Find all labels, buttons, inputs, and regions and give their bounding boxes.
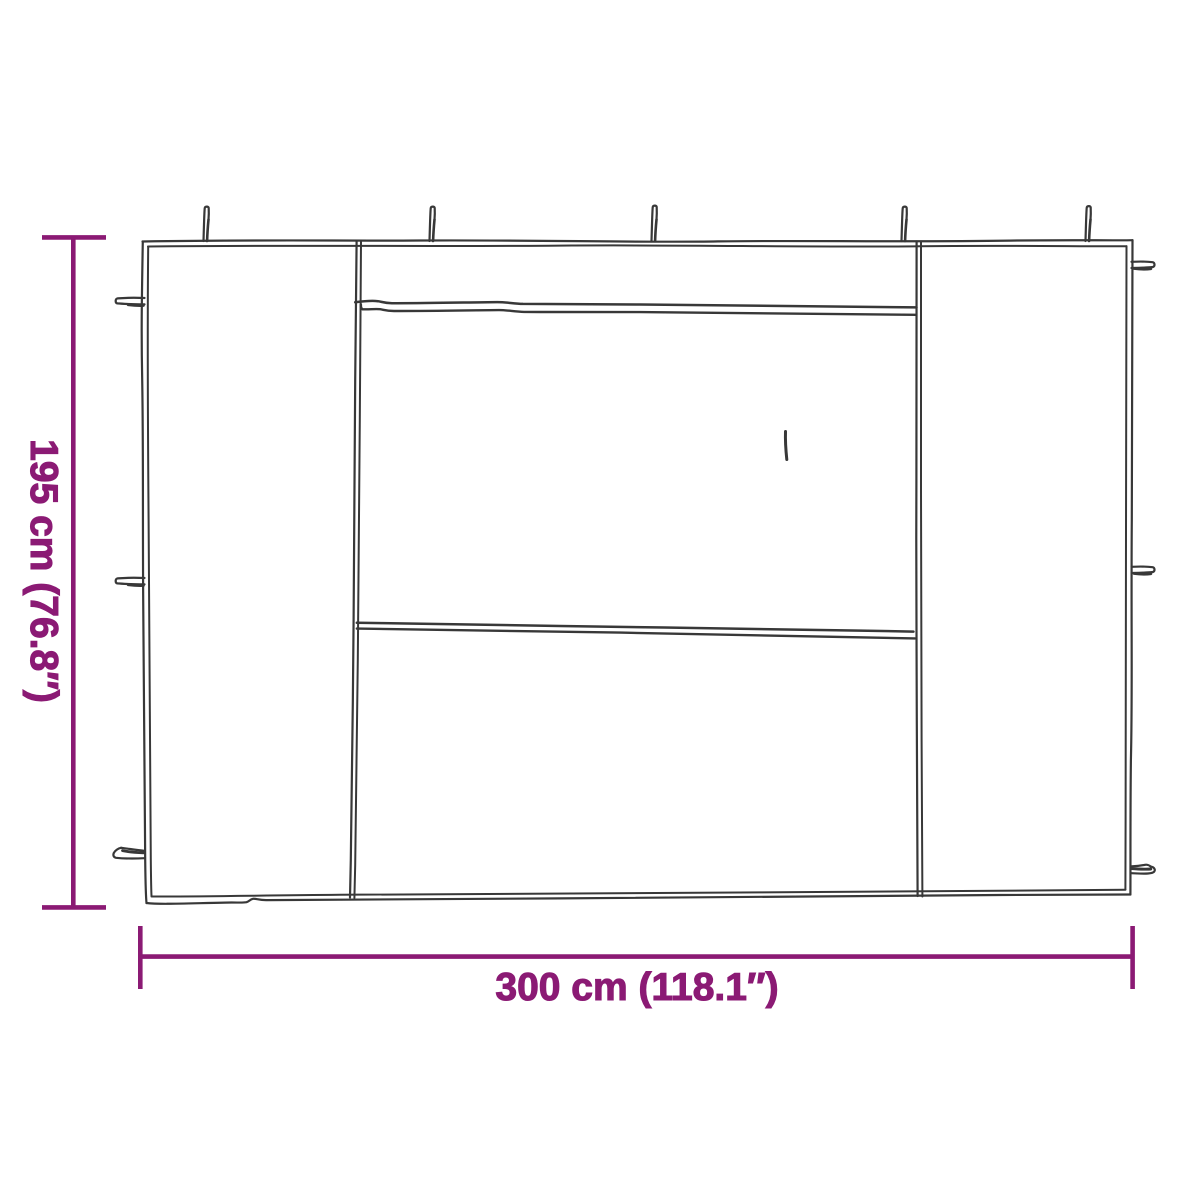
svg-text:195 cm (76.8″): 195 cm (76.8″) bbox=[22, 439, 65, 703]
svg-text:300 cm (118.1″): 300 cm (118.1″) bbox=[495, 966, 778, 1009]
